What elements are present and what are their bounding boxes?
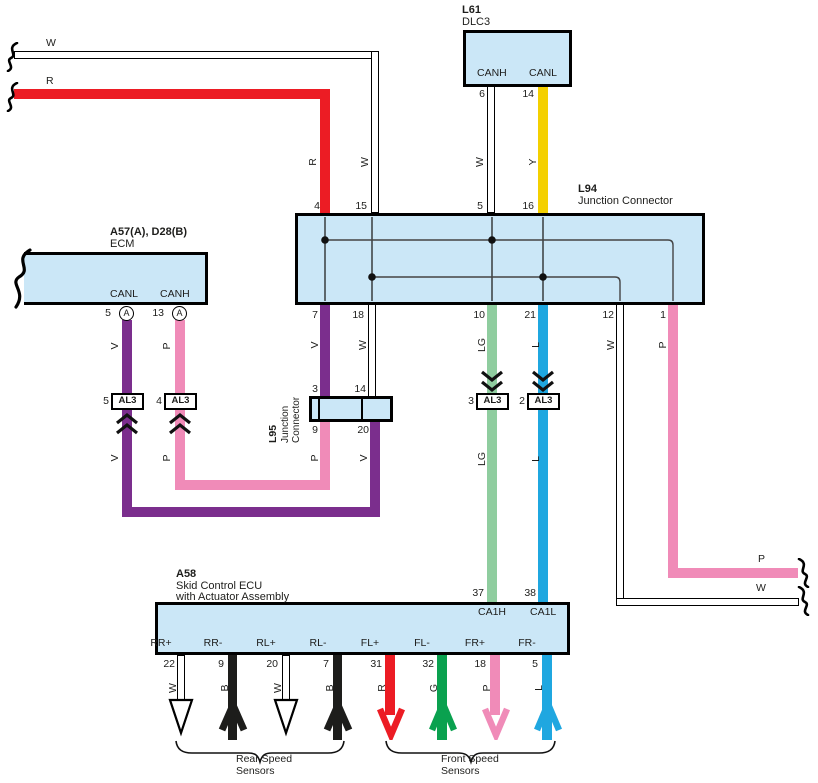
pin-number: 1 (640, 309, 666, 321)
a58-terminal-label: RL+ (246, 637, 286, 649)
arrow-up-icon (428, 700, 458, 734)
pin-number: 3 (448, 395, 474, 407)
rear-speed-sensors-line2: Sensors (236, 765, 275, 777)
ecm-name: ECM (110, 238, 134, 251)
wire-color-label: Y (527, 153, 539, 171)
a58-code: A58 (176, 568, 196, 581)
pin-number: 20 (252, 658, 278, 670)
wire-ecm-canl-violet-horizontal (122, 507, 380, 517)
wire-l94-pin12-white-vertical (616, 303, 624, 606)
wire-color-label: B (324, 679, 336, 697)
wire-dlc3-canl-yellow (538, 83, 548, 213)
wire-l94-pin1-pink-vertical (668, 303, 678, 578)
wire-color-label: W (359, 153, 371, 171)
wire-color-label: P (657, 336, 669, 354)
a58-terminal-label: FR+ (455, 637, 495, 649)
arrow-down-hollow-icon (273, 698, 299, 738)
dlc3-canl-terminal: CANL (529, 67, 557, 79)
chevron-down-icon (530, 369, 556, 393)
pin-number: 14 (340, 383, 366, 395)
wiring-diagram: AL3 AL3 AL3 AL3 W R (0, 0, 818, 783)
l55-name-line1: Junction (280, 406, 291, 443)
wire-break-symbol (796, 558, 812, 588)
pin-number: 3 (292, 383, 318, 395)
ecm-torn-edge (6, 247, 36, 311)
ecm-canh-terminal: CANH (160, 288, 190, 300)
pin-number: 5 (512, 658, 538, 670)
l94-internal-bus (299, 217, 701, 301)
wire-ecm-canl-violet-upper (122, 320, 132, 395)
l55-name-line2: Connector (291, 397, 302, 443)
wire-color-label: W (756, 582, 766, 594)
arrow-up-icon (218, 700, 248, 734)
dlc3-canh-terminal: CANH (477, 67, 507, 79)
wire-color-label: LG (476, 336, 488, 354)
a58-terminal-label: FL+ (350, 637, 390, 649)
wire-color-label: W (605, 336, 617, 354)
wire-l94-pin18-white (368, 303, 376, 398)
wire-color-label: P (161, 337, 173, 355)
pin-number: 5 (85, 307, 111, 319)
front-speed-sensors-line1: Front Speed (441, 753, 499, 765)
wire-canh-white-top-vertical (371, 51, 379, 213)
rear-speed-sensors-line1: Rear Speed (236, 753, 292, 765)
chevron-down-icon (479, 369, 505, 393)
wire-canh-white-top-horizontal (14, 51, 379, 59)
dlc3-name: DLC3 (462, 16, 490, 29)
l94-name: Junction Connector (578, 195, 673, 208)
arrow-down-hollow-icon (168, 698, 194, 738)
pin-number: 7 (292, 309, 318, 321)
wire-color-label: LG (476, 450, 488, 468)
pin-number: 32 (408, 658, 434, 670)
pin-number: 5 (457, 200, 483, 212)
pin-number: 6 (459, 88, 485, 100)
a58-terminal-label: FL- (402, 637, 442, 649)
pin-number: 5 (83, 395, 109, 407)
a58-name-line2: with Actuator Assembly (176, 591, 289, 604)
wire-l94-pin12-white-horizontal (616, 598, 799, 606)
wire-l94-pin1-pink-horizontal (668, 568, 798, 578)
pin-number: 15 (341, 200, 367, 212)
wire-color-label: W (272, 679, 284, 697)
pin-number: 22 (149, 658, 175, 670)
wire-color-label: P (481, 679, 493, 697)
wire-color-label: P (309, 449, 321, 467)
wire-ecm-canh-pink-upper (175, 320, 185, 395)
wire-color-label: R (376, 679, 388, 697)
wire-canl-red-top-vertical (320, 89, 330, 213)
connector-letter-badge: A (172, 306, 187, 321)
wire-color-label: P (161, 449, 173, 467)
wire-color-label: V (109, 449, 121, 467)
a58-ca1h-terminal: CA1H (478, 606, 506, 618)
pin-number: 21 (510, 309, 536, 321)
chevron-up-icon (167, 412, 193, 436)
wire-color-label: R (307, 153, 319, 171)
al3-connector-ecm-right: AL3 (164, 393, 197, 410)
l55-code: L95 (267, 425, 279, 443)
wire-color-label: V (358, 449, 370, 467)
wire-color-label: W (357, 336, 369, 354)
ecm-code: A57(A), D28(B) (110, 226, 187, 239)
wire-color-label: W (167, 679, 179, 697)
wire-color-label: L (530, 450, 542, 468)
l94-code: L94 (578, 183, 597, 196)
wire-color-label: P (758, 553, 765, 565)
ecm-canl-terminal: CANL (110, 288, 138, 300)
wire-color-label: L (530, 336, 542, 354)
wire-color-label: V (309, 336, 321, 354)
wire-color-label: W (474, 153, 486, 171)
pin-number: 38 (510, 587, 536, 599)
wire-color-label: V (109, 337, 121, 355)
pin-number: 9 (292, 424, 318, 436)
a58-terminal-label: RR+ (141, 637, 181, 649)
pin-number: 37 (458, 587, 484, 599)
al3-connector-mid-right: AL3 (527, 393, 560, 410)
pin-number: 9 (198, 658, 224, 670)
wire-canl-red-top-horizontal (14, 89, 330, 99)
wire-color-label: R (46, 75, 54, 87)
front-speed-sensors-line2: Sensors (441, 765, 480, 777)
pin-number: 16 (508, 200, 534, 212)
wire-l55-pin9-pink-riser (320, 421, 330, 490)
wire-break-symbol (4, 42, 20, 72)
wire-break-symbol (796, 586, 812, 616)
wire-color-label: L (533, 679, 545, 697)
arrow-up-icon (323, 700, 353, 734)
connector-letter-badge: A (119, 306, 134, 321)
wire-ecm-canh-pink-horizontal (175, 480, 330, 490)
arrow-down-icon (376, 706, 406, 740)
pin-number: 10 (459, 309, 485, 321)
pin-number: 12 (588, 309, 614, 321)
pin-number: 18 (338, 309, 364, 321)
pin-number: 7 (303, 658, 329, 670)
a58-terminal-label: FR- (507, 637, 547, 649)
rear-speed-sensors-label: Rear Speed Sensors (236, 753, 292, 777)
a58-terminal-label: RL- (298, 637, 338, 649)
wire-l94-pin10-lightgreen (487, 303, 497, 603)
wire-l55-pin20-violet-riser (370, 421, 380, 517)
pin-number: 2 (499, 395, 525, 407)
chevron-up-icon (114, 412, 140, 436)
wire-l94-pin7-violet (320, 303, 330, 398)
arrow-up-icon (533, 700, 563, 734)
pin-number: 4 (294, 200, 320, 212)
a58-ca1l-terminal: CA1L (530, 606, 556, 618)
dlc3-code: L61 (462, 4, 481, 17)
a58-terminal-label: RR- (193, 637, 233, 649)
pin-number: 13 (138, 307, 164, 319)
pin-number: 14 (508, 88, 534, 100)
wire-color-label: W (46, 37, 56, 49)
arrow-down-icon (481, 706, 511, 740)
front-speed-sensors-label: Front Speed Sensors (441, 753, 499, 777)
wire-dlc3-canh-white (487, 83, 495, 213)
l55-cell-divider (361, 399, 363, 419)
wire-color-label: B (219, 679, 231, 697)
pin-number: 18 (460, 658, 486, 670)
pin-number: 20 (343, 424, 369, 436)
wire-break-symbol (4, 82, 20, 112)
l55-junction-connector-box (309, 396, 393, 422)
wire-color-label: G (428, 679, 440, 697)
l55-cell-divider (318, 399, 320, 419)
pin-number: 31 (356, 658, 382, 670)
pin-number: 4 (136, 395, 162, 407)
